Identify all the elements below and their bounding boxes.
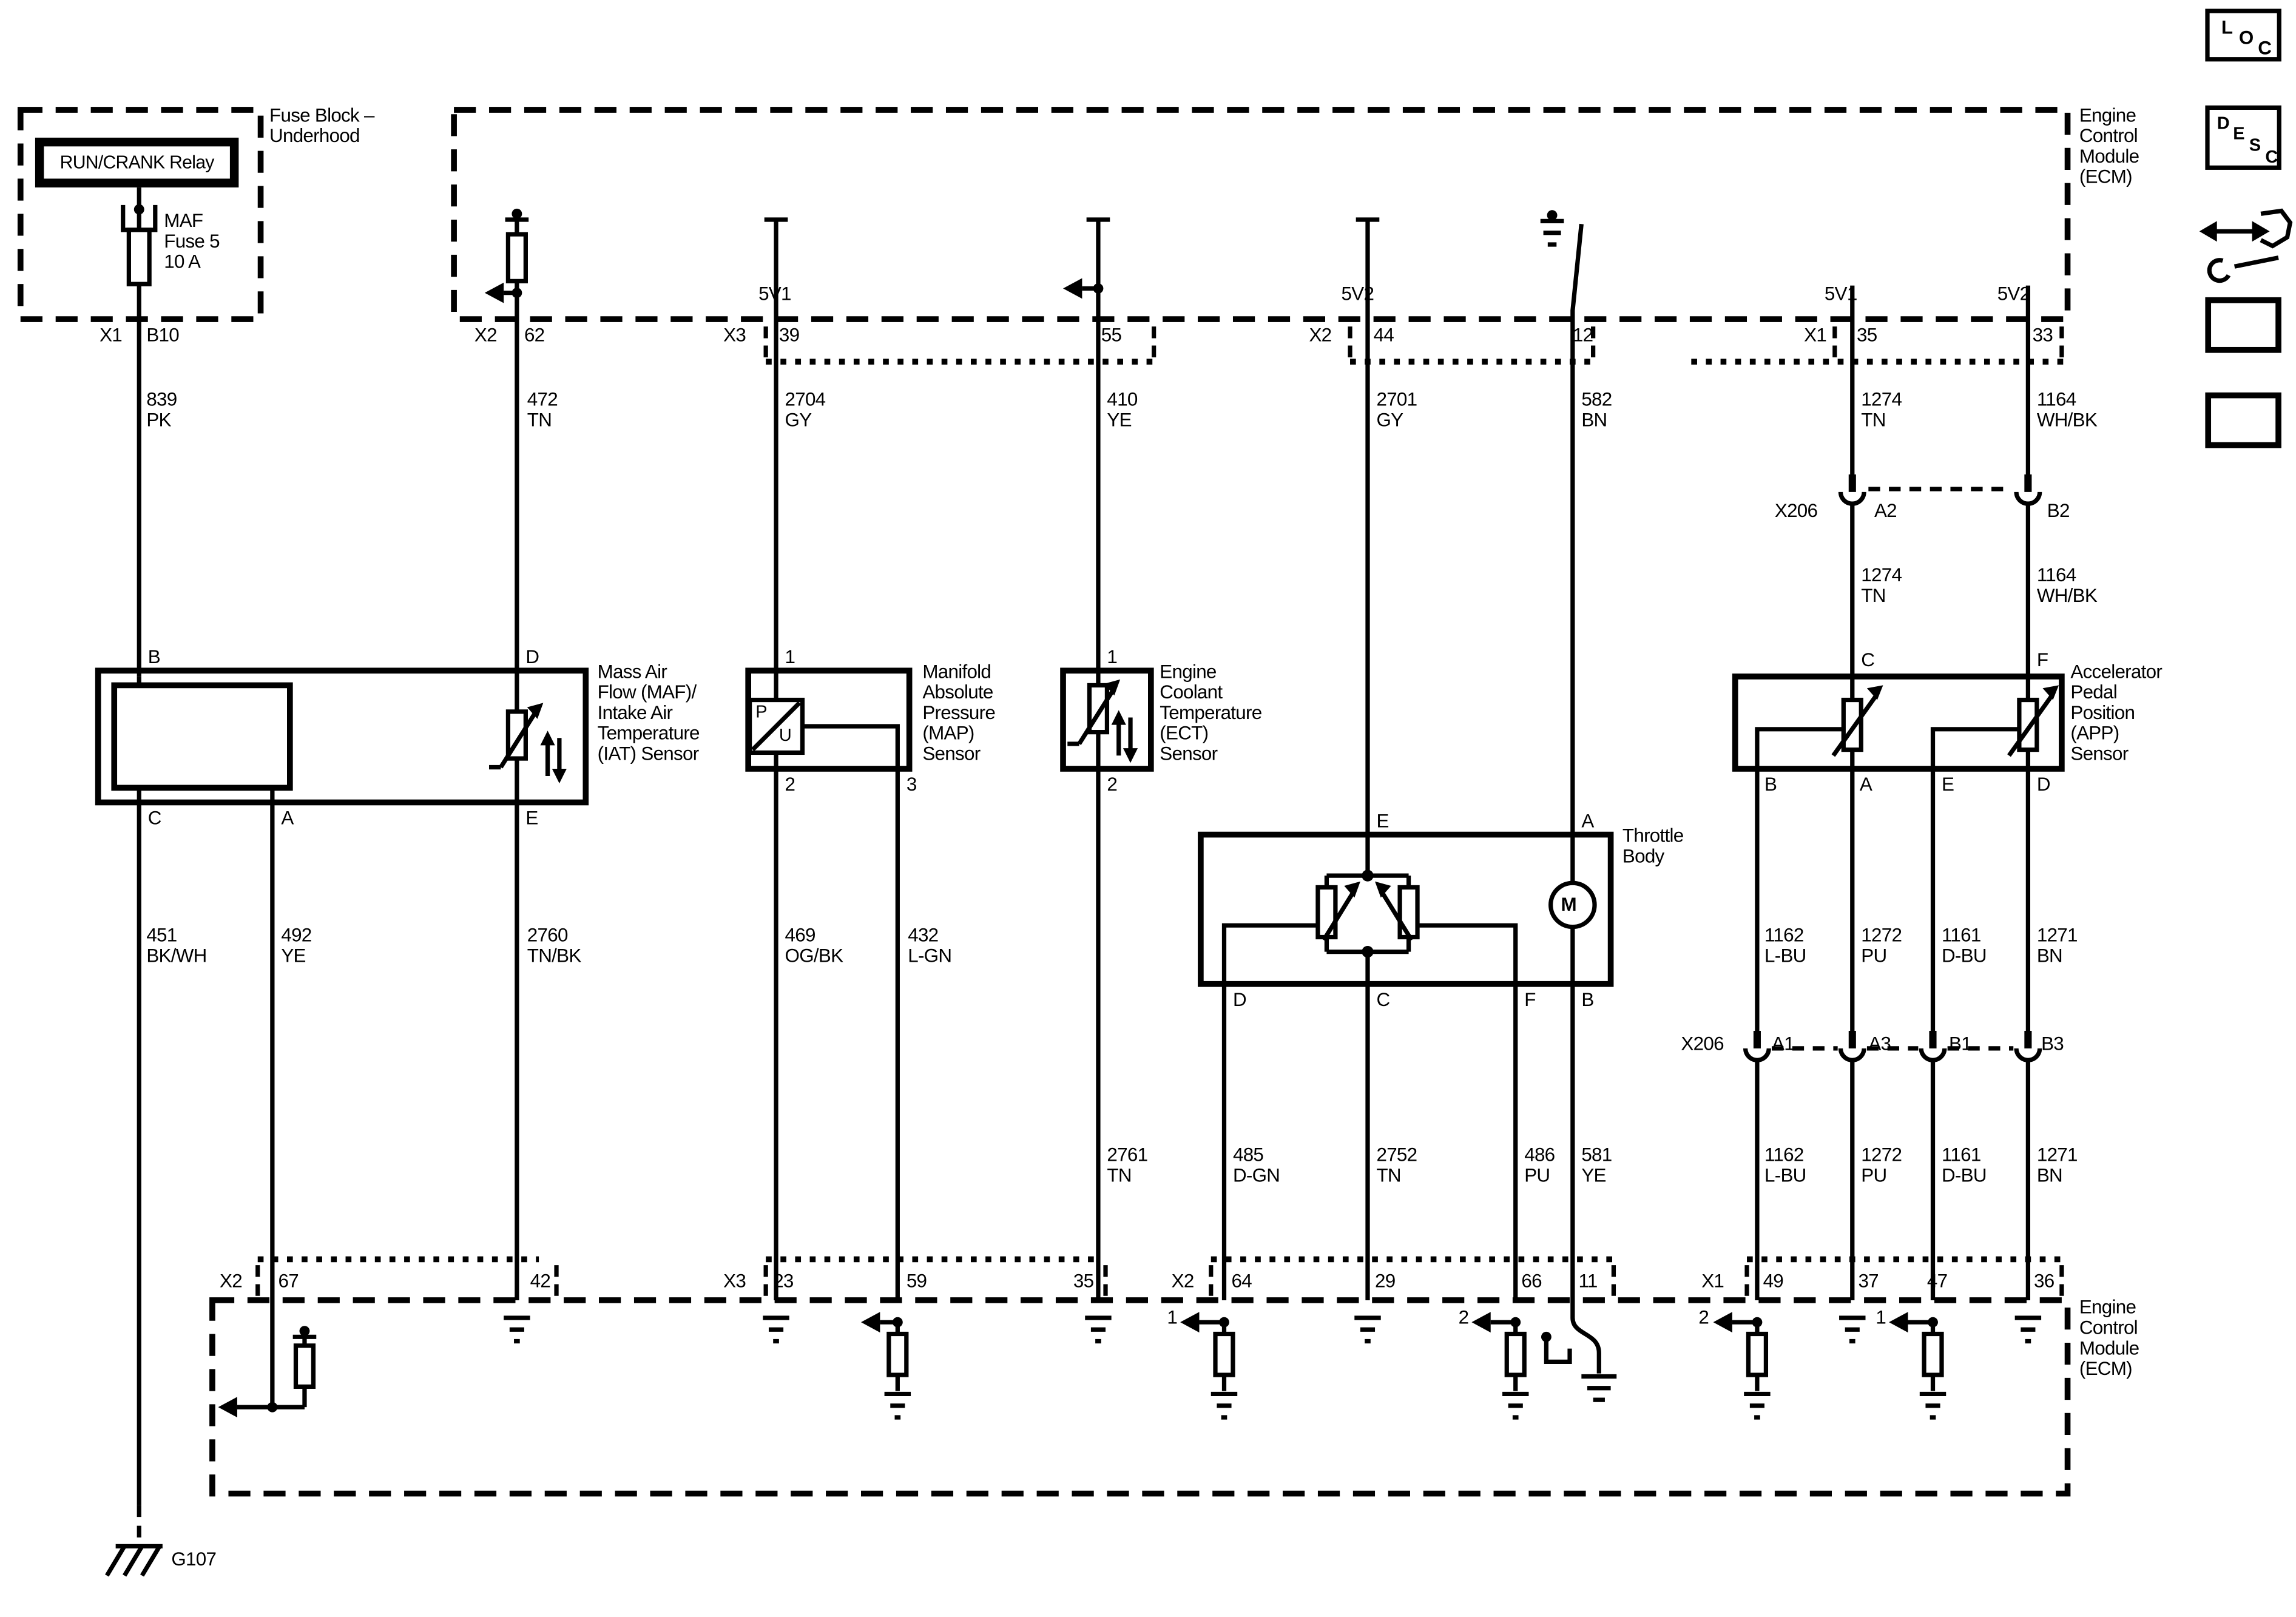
x206-pin-a1: A1 — [1772, 1034, 1794, 1055]
bot-pin-29: 29 — [1375, 1271, 1395, 1292]
app-pin-f: F — [2037, 650, 2048, 670]
wire-label-1274-tn-2: 1274TN — [1861, 565, 1902, 607]
ecm-internal-62 — [485, 209, 528, 712]
ref-num-64: 1 — [1167, 1308, 1177, 1328]
wire-label-1164-whbk-2: 1164WH/BK — [2037, 565, 2097, 607]
wire-label-1162-lbu-2: 1162L-BU — [1764, 1145, 1806, 1186]
wire-label-2761-tn: 2761TN — [1107, 1145, 1147, 1186]
ecm-internal-66 — [1471, 1312, 1528, 1417]
wire-label-1271-bn: 1271BN — [2037, 925, 2078, 967]
maf-sensor-title: Mass AirFlow (MAF)/Intake Air Temperatur… — [598, 662, 700, 765]
top-conn-x2: X2 — [474, 325, 497, 346]
desc-letter: E — [2233, 123, 2244, 144]
ecm-internal-terminations — [504, 1318, 2041, 1342]
ecm-internal-12-driver — [1541, 210, 1582, 883]
map-symbol-u: U — [779, 725, 791, 746]
top-pin-39: 39 — [779, 325, 799, 346]
ref-num-66: 2 — [1459, 1308, 1469, 1328]
ecm-bottom-title: EngineControl Module(ECM) — [2079, 1297, 2139, 1379]
ect-pin-1: 1 — [1107, 647, 1117, 668]
desc-letter: C — [2265, 146, 2278, 167]
ecm-internal-47 — [1889, 1312, 1946, 1417]
ect-pin-2: 2 — [1107, 775, 1117, 795]
wire-label-2760-tnbk: 2760TN/BK — [527, 925, 581, 967]
throttle-body-title: ThrottleBody — [1622, 826, 1684, 867]
wire-label-582-bn: 582BN — [1581, 390, 1612, 431]
maf-iat-sensor-symbol — [98, 670, 586, 1505]
maf-pin-c: C — [148, 808, 161, 829]
loc-letter: O — [2239, 26, 2254, 48]
ecm-internal-64 — [1180, 1312, 1237, 1417]
map-sensor-title: ManifoldAbsolutePressure (MAP)Sensor — [922, 662, 995, 765]
bot-pin-64: 64 — [1232, 1271, 1252, 1292]
bot-pin-37: 37 — [1858, 1271, 1878, 1292]
bot-conn-x2b: X2 — [1172, 1271, 1194, 1292]
maf-pin-e: E — [525, 808, 538, 829]
wiring-diagram-page: L O C D E S C Fuse Block –Underhood Engi… — [0, 0, 2296, 1616]
wire-label-432-lgn: 432L-GN — [908, 925, 951, 967]
bottom-connector-rails — [258, 1259, 2065, 1297]
ref-num-47: 1 — [1876, 1308, 1886, 1328]
top-pin-35: 35 — [1857, 325, 1877, 346]
bot-conn-x1: X1 — [1701, 1271, 1724, 1292]
tb-pin-e: E — [1376, 811, 1388, 832]
run-crank-relay: RUN/CRANK Relay — [35, 138, 238, 187]
back-button[interactable] — [2205, 393, 2281, 448]
x206-pin-b2: B2 — [2047, 501, 2070, 521]
bot-pin-59: 59 — [907, 1271, 927, 1292]
top-pin-b10: B10 — [146, 325, 179, 346]
x206-pin-b3: B3 — [2041, 1034, 2064, 1055]
top-pin-62: 62 — [524, 325, 544, 346]
wire-label-472-tn: 472TN — [527, 390, 558, 431]
wiring-diagram-canvas — [0, 0, 2296, 1616]
maf-pin-a: A — [281, 808, 293, 829]
top-pin-44: 44 — [1374, 325, 1394, 346]
map-pin-1: 1 — [785, 647, 795, 668]
bot-pin-35: 35 — [1073, 1271, 1093, 1292]
wire-label-1164-whbk: 1164WH/BK — [2037, 390, 2097, 431]
wire-label-2701-gy: 2701GY — [1376, 390, 1417, 431]
ecm-internal-35-33 — [1852, 286, 2028, 489]
ecm-internal-49 — [1714, 1312, 1771, 1417]
top-conn-x3: X3 — [723, 325, 746, 346]
top-conn-x1: X1 — [100, 325, 122, 346]
wire-label-1161-dbu-2: 1161D-BU — [1942, 1145, 1987, 1186]
tb-pin-a: A — [1581, 811, 1593, 832]
map-symbol-p: P — [755, 701, 767, 722]
wire-label-839-pk: 839PK — [146, 390, 177, 431]
wire-label-2704-gy: 2704GY — [785, 390, 826, 431]
ecm-bottom-outline — [212, 1300, 2068, 1494]
forward-button[interactable] — [2205, 297, 2281, 353]
wire-label-451-bkwh: 451BK/WH — [146, 925, 206, 967]
wire-label-2752-tn: 2752TN — [1376, 1145, 1417, 1186]
map-pin-3: 3 — [907, 775, 917, 795]
desc-letter: S — [2249, 135, 2261, 155]
map-pin-2: 2 — [785, 775, 795, 795]
wire-label-1162-lbu: 1162L-BU — [1764, 925, 1806, 967]
x206-pin-b1: B1 — [1949, 1034, 1971, 1055]
ect-sensor-title: EngineCoolantTemperature (ECT)Sensor — [1160, 662, 1261, 765]
supply-5v2: 5V2 — [1342, 284, 1374, 305]
tb-pin-c: C — [1376, 990, 1389, 1010]
tb-pin-d: D — [1233, 990, 1246, 1010]
bot-pin-11: 11 — [1579, 1271, 1598, 1292]
maf-pin-d: D — [525, 647, 539, 668]
loc-letter: L — [2221, 16, 2233, 38]
desc-button[interactable]: D E S C — [2205, 106, 2281, 170]
loc-letter: C — [2258, 36, 2272, 58]
supply-5v1: 5V1 — [758, 284, 791, 305]
desc-letter: D — [2217, 113, 2230, 133]
app-pin-d: D — [2037, 775, 2050, 795]
ecm-internal-11-ground — [1541, 1300, 1616, 1400]
bot-pin-36: 36 — [2034, 1271, 2054, 1292]
tb-motor-m: M — [1561, 895, 1576, 916]
maf-pin-b: B — [148, 647, 160, 668]
top-pin-12: 12 — [1573, 325, 1593, 346]
wire-label-486-pu: 486PU — [1524, 1145, 1555, 1186]
bot-pin-49: 49 — [1763, 1271, 1783, 1292]
wire-label-1274-tn: 1274TN — [1861, 390, 1902, 431]
x206-pin-a2: A2 — [1874, 501, 1897, 521]
wire-label-1271-bn-2: 1271BN — [2037, 1145, 2078, 1186]
top-pin-55: 55 — [1101, 325, 1121, 346]
top-pin-33: 33 — [2033, 325, 2053, 346]
x206-pin-a3: A3 — [1868, 1034, 1891, 1055]
fuse-block-title: Fuse Block –Underhood — [269, 106, 374, 147]
tb-pin-f: F — [1524, 990, 1535, 1010]
loc-button[interactable]: L O C — [2205, 8, 2281, 61]
top-conn-x1b: X1 — [1804, 325, 1826, 346]
app-sensor-title: AcceleratorPedalPosition (APP)Sensor — [2070, 662, 2162, 765]
app-pin-c: C — [1861, 650, 1874, 670]
tb-pin-b: B — [1581, 990, 1593, 1010]
data-link-wrench-icon[interactable] — [2200, 211, 2291, 281]
g107-ground-symbol — [107, 1505, 163, 1576]
bot-pin-67: 67 — [279, 1271, 299, 1292]
top-conn-x2b: X2 — [1309, 325, 1331, 346]
app-sensor-symbol — [1735, 677, 2062, 1042]
app-pin-a: A — [1860, 775, 1872, 795]
x206-top-name: X206 — [1775, 501, 1817, 521]
ecm-internal-67 — [218, 1326, 317, 1417]
maf-fuse-symbol — [123, 187, 155, 677]
maf-fuse-label: MAFFuse 510 A — [164, 211, 220, 272]
wire-label-1161-dbu: 1161D-BU — [1942, 925, 1987, 967]
wire-label-581-ye: 581YE — [1581, 1145, 1612, 1186]
throttle-body-symbol — [1201, 835, 1611, 1300]
wire-label-492-ye: 492YE — [281, 925, 311, 967]
ecm-internal-59 — [861, 1312, 911, 1417]
bot-pin-42: 42 — [530, 1271, 550, 1292]
bot-pin-47: 47 — [1927, 1271, 1947, 1292]
bot-pin-66: 66 — [1521, 1271, 1541, 1292]
ect-sensor-symbol — [1063, 670, 1151, 1300]
supply-5v2b: 5V2 — [1997, 284, 2030, 305]
bot-conn-x3: X3 — [723, 1271, 746, 1292]
bot-conn-x2: X2 — [220, 1271, 242, 1292]
wire-label-410-ye: 410YE — [1107, 390, 1137, 431]
wire-label-1272-pu: 1272PU — [1861, 925, 1902, 967]
ref-num-49: 2 — [1698, 1308, 1709, 1328]
wire-label-485-dgn: 485D-GN — [1233, 1145, 1280, 1186]
wire-label-469-ogbk: 469OG/BK — [785, 925, 843, 967]
supply-5v1b: 5V1 — [1825, 284, 1857, 305]
wire-label-1272-pu-2: 1272PU — [1861, 1145, 1902, 1186]
map-sensor-symbol — [748, 670, 909, 1300]
app-pin-e: E — [1942, 775, 1954, 795]
app-pin-b: B — [1764, 775, 1777, 795]
bot-pin-23: 23 — [773, 1271, 793, 1292]
x206-bottom-name: X206 — [1681, 1034, 1723, 1055]
ground-label-g107: G107 — [171, 1549, 216, 1570]
ecm-top-title: EngineControl Module(ECM) — [2079, 106, 2139, 187]
